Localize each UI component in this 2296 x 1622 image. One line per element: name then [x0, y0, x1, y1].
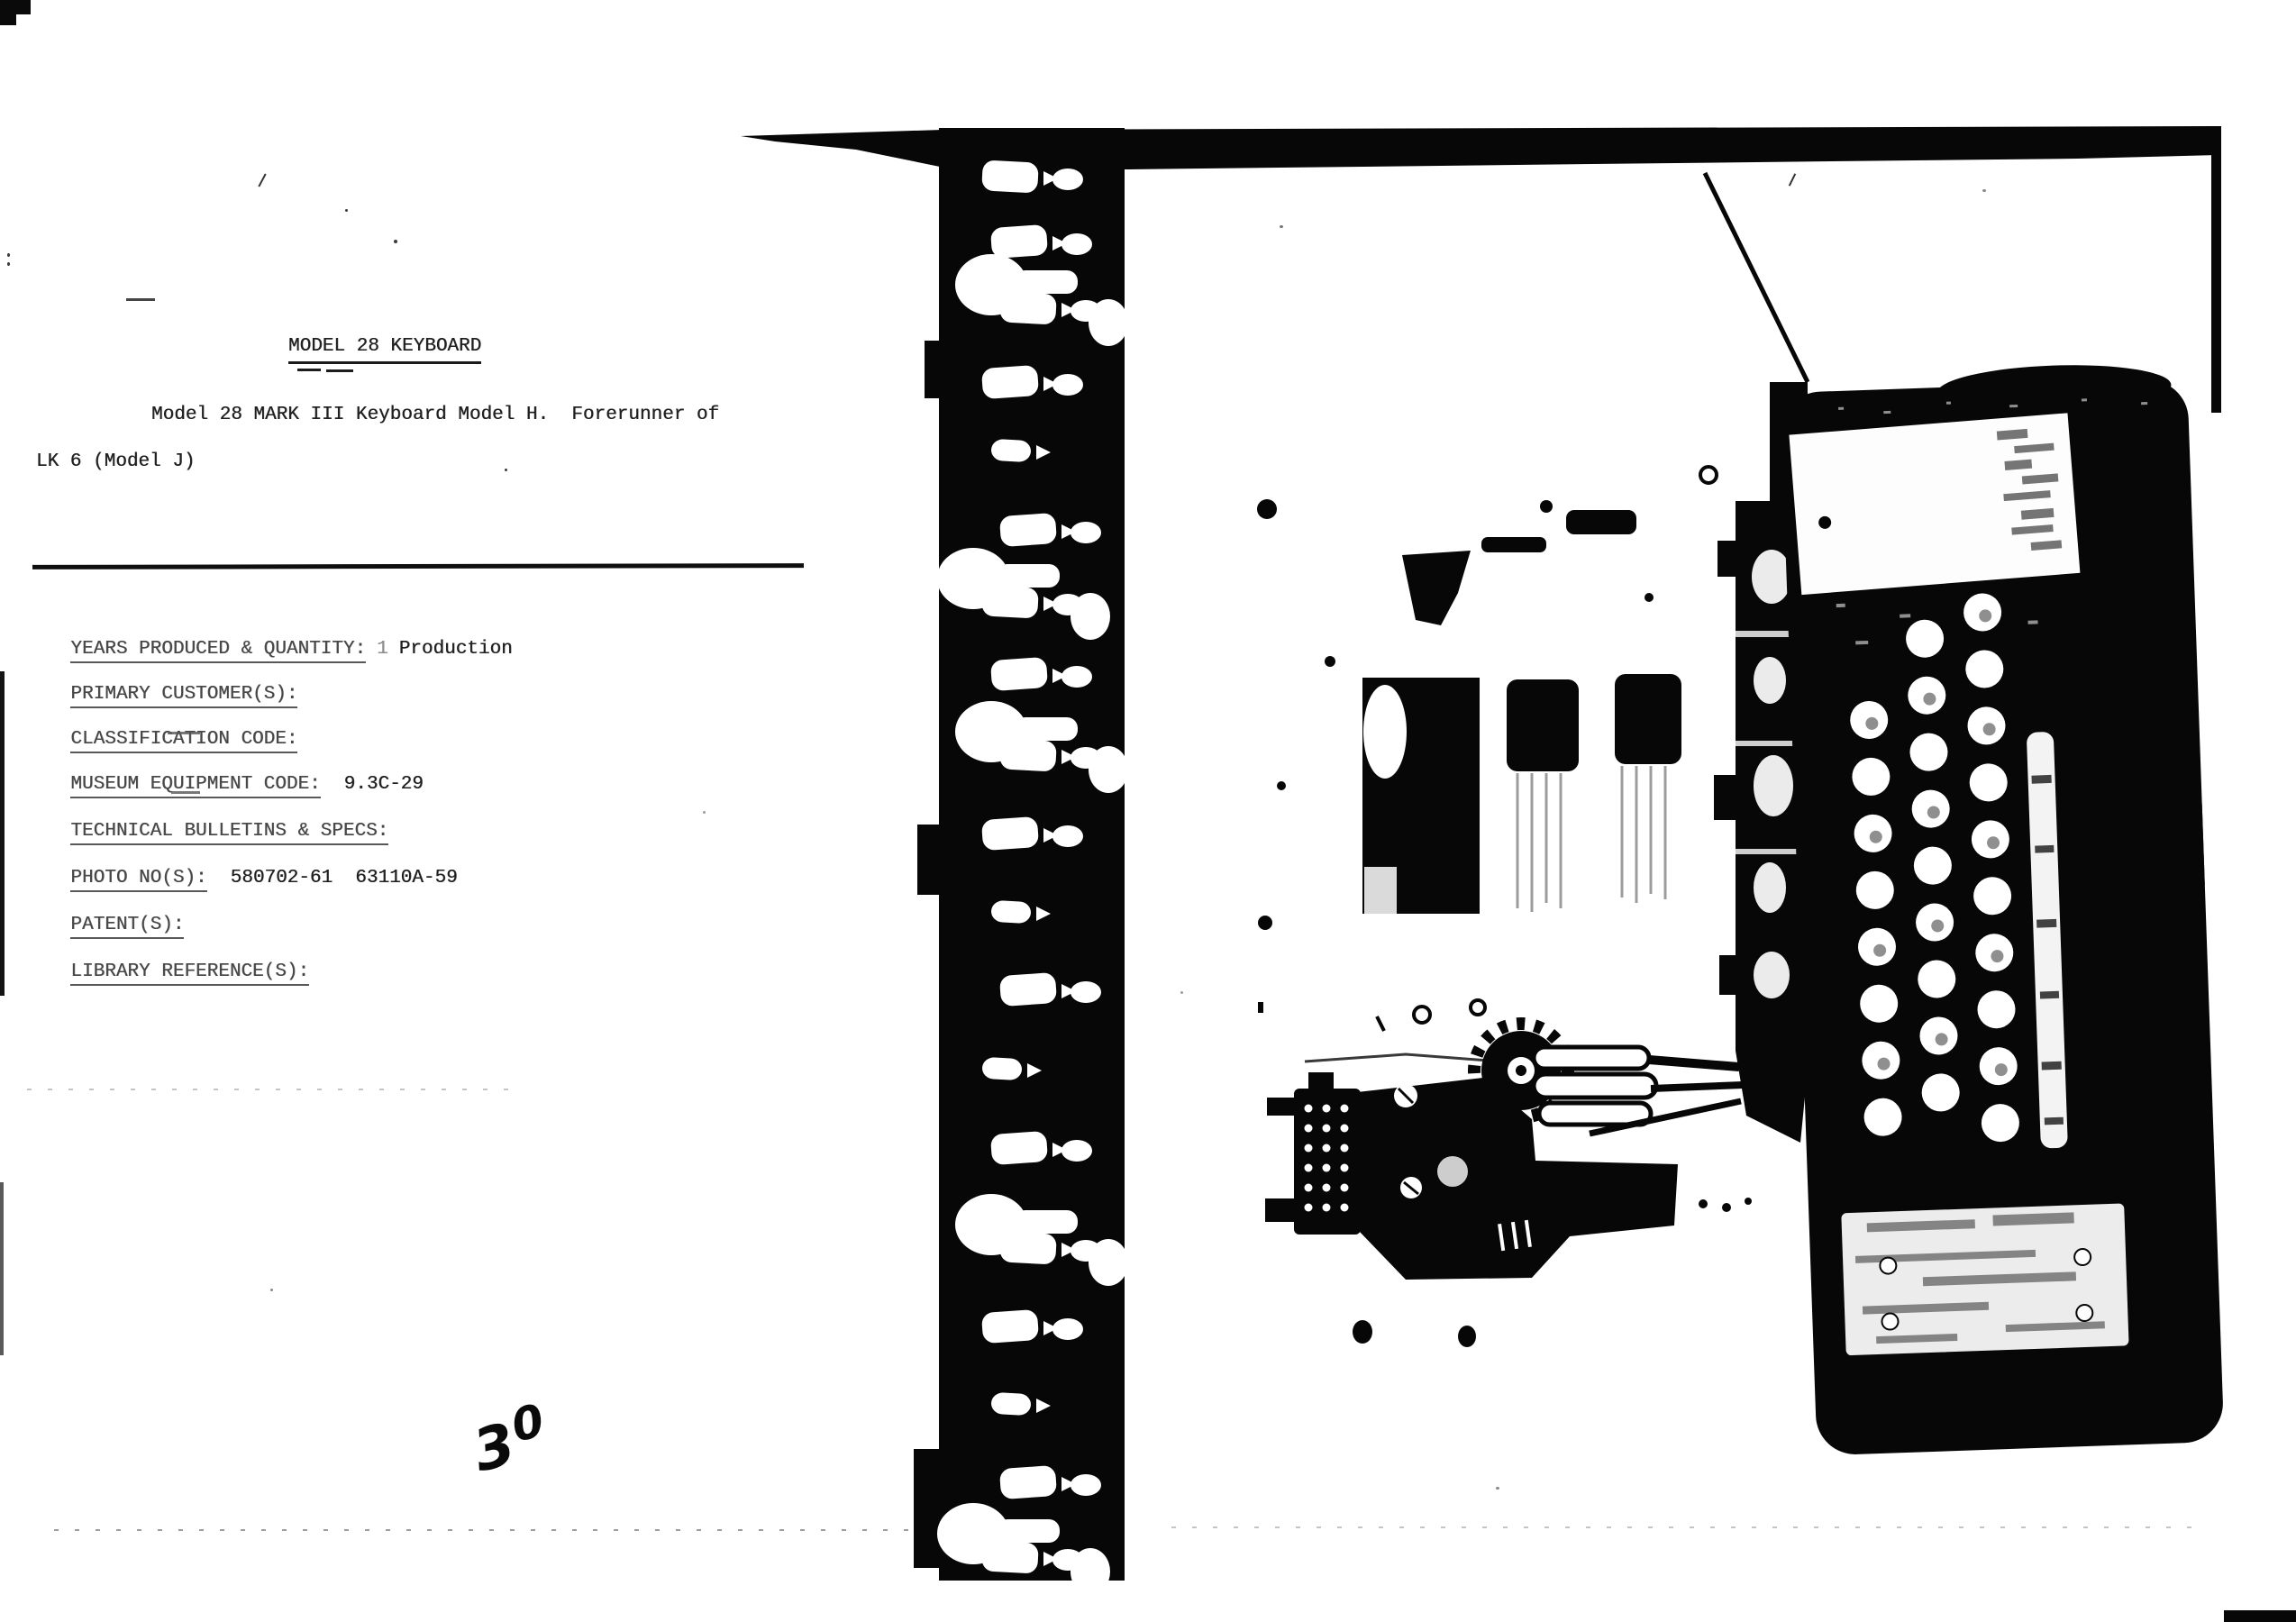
- connector-pin: [1305, 1184, 1313, 1192]
- connector-pin: [1341, 1204, 1349, 1212]
- drive-mechanism: [1258, 1002, 1752, 1347]
- photo-edge-line: [2211, 126, 2221, 413]
- connector-pin: [1305, 1144, 1313, 1153]
- chassis-plate: [1257, 467, 1784, 1062]
- connector-pin: [1341, 1125, 1349, 1133]
- connector-pin: [1305, 1164, 1313, 1172]
- connector-pin: [1305, 1204, 1313, 1212]
- name-plate: [1789, 413, 2080, 595]
- connector-pin: [1323, 1105, 1331, 1113]
- scanned-catalog-page: MODEL 28 KEYBOARD Model 28 MARK III Keyb…: [0, 0, 2296, 1622]
- connector-pin: [1323, 1204, 1331, 1212]
- keyboard-unit: [1780, 360, 2225, 1455]
- connector-pin: [1323, 1125, 1331, 1133]
- connector-pin: [1323, 1184, 1331, 1192]
- shafts: [1534, 1047, 1656, 1125]
- connector-pin: [1323, 1164, 1331, 1172]
- connector-pin: [1341, 1105, 1349, 1113]
- film-strip: [914, 128, 1128, 1595]
- connector-pin: [1341, 1164, 1349, 1172]
- connector-pin: [1341, 1184, 1349, 1192]
- connector-pin: [1305, 1105, 1313, 1113]
- base-plate: [1839, 1201, 2130, 1357]
- cable-connector: [1265, 1072, 1361, 1235]
- connector-pin: [1305, 1125, 1313, 1133]
- photo-figure: [0, 0, 2296, 1622]
- connector-pin: [1323, 1144, 1331, 1153]
- connector-pin: [1341, 1144, 1349, 1153]
